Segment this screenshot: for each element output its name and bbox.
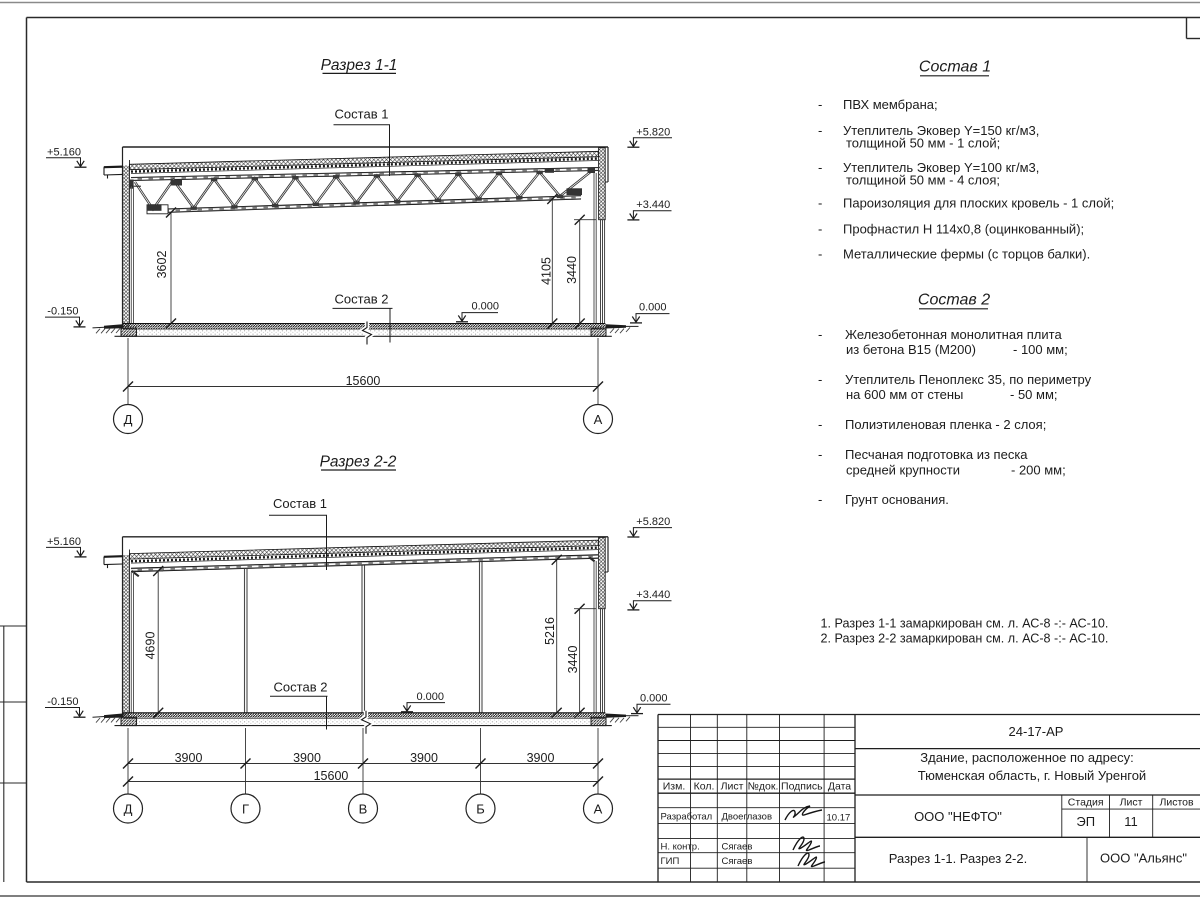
svg-text:Пароизоляция для плоских крове: Пароизоляция для плоских кровель - 1 сло… (843, 196, 1114, 211)
svg-text:толщиной 50 мм - 1 слой;: толщиной 50 мм - 1 слой; (846, 136, 1000, 151)
svg-text:Состав 2: Состав 2 (918, 292, 990, 309)
svg-text:4105: 4105 (540, 257, 554, 285)
svg-text:-: - (818, 222, 822, 237)
svg-text:11: 11 (1124, 814, 1138, 829)
svg-text:Сягаев: Сягаев (722, 856, 753, 867)
svg-text:ГИП: ГИП (661, 856, 680, 867)
svg-text:24-17-АР: 24-17-АР (1009, 724, 1064, 739)
svg-text:Б: Б (476, 801, 485, 816)
svg-text:Разработал: Разработал (661, 811, 713, 822)
svg-text:Состав 1: Состав 1 (335, 106, 389, 121)
svg-text:на 600 мм от стены: на 600 мм от стены (846, 387, 963, 402)
svg-text:Двоеглазов: Двоеглазов (722, 811, 773, 822)
svg-text:Разрез 2-2: Разрез 2-2 (320, 454, 397, 471)
svg-text:Изм.: Изм. (663, 781, 686, 793)
svg-text:10.17: 10.17 (827, 812, 851, 823)
svg-text:Тюменская область, г. Новый Ур: Тюменская область, г. Новый Уренгой (918, 768, 1146, 783)
svg-text:-0.150: -0.150 (47, 306, 78, 318)
svg-text:0.000: 0.000 (472, 301, 500, 313)
svg-text:+5.160: +5.160 (47, 146, 81, 158)
svg-text:1. Разрез 1-1 замаркирован см.: 1. Разрез 1-1 замаркирован см. л. АС-8 -… (821, 617, 1109, 631)
svg-text:Профнастил Н 114х0,8 (оцинкова: Профнастил Н 114х0,8 (оцинкованный); (843, 222, 1084, 237)
svg-text:0.000: 0.000 (417, 691, 445, 703)
svg-text:5216: 5216 (543, 617, 557, 645)
svg-text:толщиной 50 мм - 4 слоя;: толщиной 50 мм - 4 слоя; (846, 173, 1000, 188)
svg-text:из бетона В15 (М200): из бетона В15 (М200) (846, 342, 976, 357)
svg-text:Взам. инв. №: Взам. инв. № (0, 636, 1, 686)
svg-text:Инв. № подл.: Инв. № подл. (0, 810, 1, 860)
svg-text:№док.: №док. (748, 781, 779, 793)
svg-text:Лист: Лист (721, 781, 744, 793)
svg-text:Грунт основания.: Грунт основания. (845, 492, 949, 507)
svg-text:ЭП: ЭП (1076, 814, 1095, 829)
svg-text:3900: 3900 (175, 751, 203, 765)
svg-text:3900: 3900 (410, 751, 438, 765)
svg-text:3602: 3602 (155, 251, 169, 279)
svg-text:15600: 15600 (314, 769, 349, 783)
svg-text:ООО "Альянс": ООО "Альянс" (1100, 851, 1187, 866)
svg-text:Дата: Дата (828, 781, 851, 793)
svg-text:+5.820: +5.820 (636, 126, 670, 138)
svg-text:Г: Г (242, 801, 249, 816)
svg-text:-: - (818, 447, 822, 462)
svg-text:Песчаная подготовка из песка: Песчаная подготовка из песка (845, 447, 1028, 462)
svg-text:-: - (818, 97, 822, 112)
svg-text:Железобетонная монолитная пли: Железобетонная монолитная плита (845, 327, 1062, 342)
svg-text:3440: 3440 (565, 256, 579, 284)
svg-text:- 100 мм;: - 100 мм; (1013, 342, 1068, 357)
svg-text:Полиэтиленовая пленка - 2 слоя: Полиэтиленовая пленка - 2 слоя; (845, 417, 1046, 432)
svg-text:Подпись: Подпись (781, 781, 823, 793)
svg-text:Состав 1: Состав 1 (273, 496, 327, 511)
svg-text:Стадия: Стадия (1068, 797, 1104, 809)
svg-text:0.000: 0.000 (640, 693, 668, 705)
svg-text:Состав 1: Состав 1 (919, 59, 991, 76)
svg-text:2. Разрез 2-2 замаркирован см.: 2. Разрез 2-2 замаркирован см. л. АС-8 -… (821, 632, 1109, 646)
svg-text:средней крупности: средней крупности (846, 462, 960, 477)
svg-text:Листов: Листов (1159, 797, 1194, 809)
svg-text:А: А (594, 412, 603, 427)
svg-text:-: - (818, 417, 822, 432)
svg-text:Состав 2: Состав 2 (274, 680, 328, 695)
svg-text:Д: Д (124, 412, 133, 427)
svg-text:-: - (818, 372, 822, 387)
svg-text:Д: Д (124, 801, 133, 816)
svg-text:- 50 мм;: - 50 мм; (1010, 387, 1058, 402)
svg-text:-: - (818, 160, 822, 175)
svg-text:-: - (818, 196, 822, 211)
svg-text:+5.820: +5.820 (636, 516, 670, 528)
svg-text:-0.150: -0.150 (47, 696, 78, 708)
svg-text:Разрез 1-1: Разрез 1-1 (321, 57, 398, 74)
svg-text:Металлические фермы (с торцов: Металлические фермы (с торцов балки). (843, 247, 1090, 262)
svg-text:-: - (818, 123, 822, 138)
svg-text:В: В (359, 801, 368, 816)
svg-text:ООО "НЕФТО": ООО "НЕФТО" (914, 809, 1002, 824)
svg-text:Кол.: Кол. (694, 781, 715, 793)
svg-text:Н. контр.: Н. контр. (661, 841, 700, 852)
svg-text:ПВХ мембрана;: ПВХ мембрана; (843, 97, 938, 112)
svg-text:Лист: Лист (1120, 797, 1143, 809)
svg-text:Здание, расположенное по адрес: Здание, расположенное по адресу: (920, 750, 1133, 765)
svg-text:Состав 2: Состав 2 (335, 291, 389, 306)
svg-text:0.000: 0.000 (639, 302, 667, 314)
svg-text:15600: 15600 (346, 374, 381, 388)
svg-text:4690: 4690 (143, 632, 157, 660)
svg-text:-: - (818, 247, 822, 262)
svg-text:- 200 мм;: - 200 мм; (1011, 462, 1066, 477)
svg-text:Сягаев: Сягаев (722, 841, 753, 852)
svg-text:+5.160: +5.160 (47, 536, 81, 548)
svg-text:+3.440: +3.440 (636, 199, 670, 211)
svg-text:Подп. и дата: Подп. и дата (0, 720, 1, 768)
svg-text:-: - (818, 492, 822, 507)
svg-text:Утеплитель Пеноплекс 35, по пе: Утеплитель Пеноплекс 35, по периметру (845, 372, 1092, 387)
svg-text:А: А (594, 801, 603, 816)
svg-text:Разрез 1-1. Разрез 2-2.: Разрез 1-1. Разрез 2-2. (889, 851, 1027, 866)
svg-text:+3.440: +3.440 (636, 589, 670, 601)
svg-text:3900: 3900 (527, 751, 555, 765)
svg-text:3900: 3900 (293, 751, 321, 765)
svg-text:3440: 3440 (566, 646, 580, 674)
svg-text:-: - (818, 327, 822, 342)
